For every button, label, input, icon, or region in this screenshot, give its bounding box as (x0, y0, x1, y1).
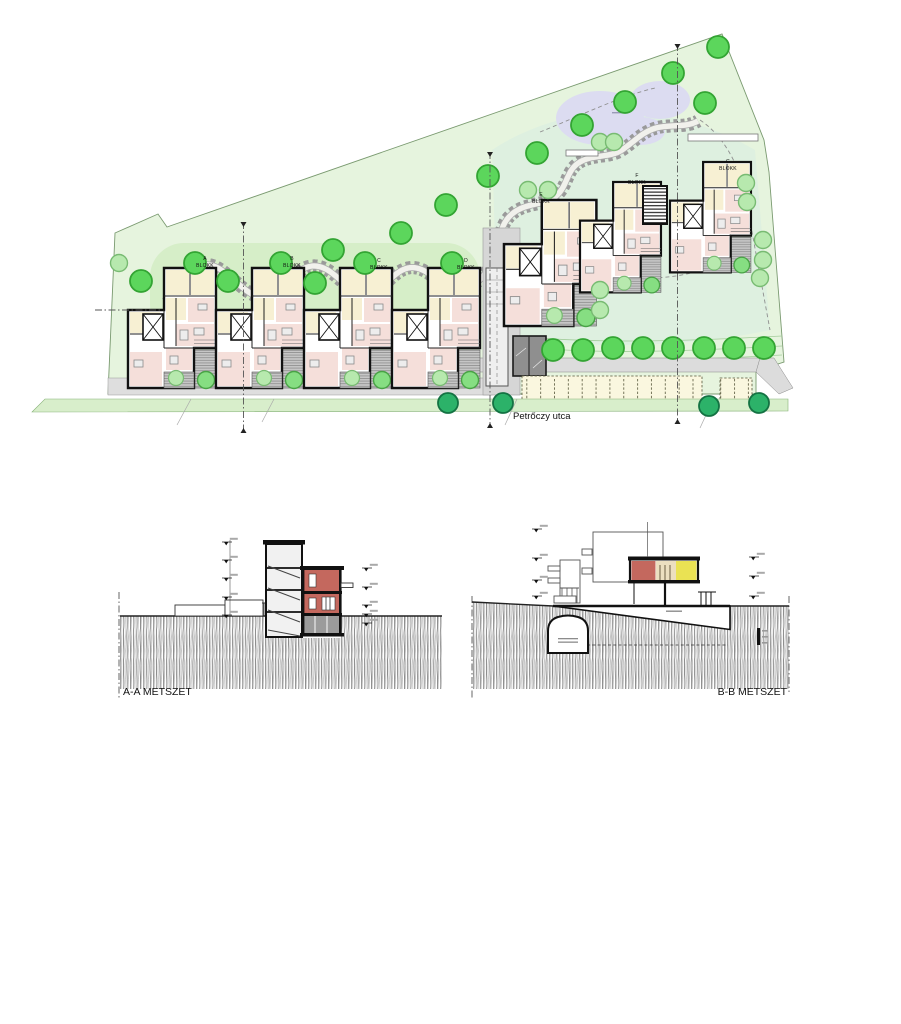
ground-floor-grey (303, 616, 339, 633)
block-g-word: BLOKK (719, 166, 737, 172)
base-slab (300, 633, 344, 637)
block-g-letter: G (726, 159, 730, 165)
red-room (632, 561, 656, 580)
bench (566, 150, 598, 156)
street-verge (32, 399, 788, 412)
block-b-word: BLOKK (283, 263, 301, 269)
sidewalk-corner (756, 358, 793, 394)
block-f-letter: F (635, 173, 638, 179)
window-3bar (322, 597, 335, 610)
architectural-drawing-sheet: A BLOKK B BLOKK C BLOKK D BLOKK E BLOKK … (0, 0, 901, 1024)
section-bb: B-B METSZET (472, 522, 789, 700)
site-plan: A BLOKK B BLOKK C BLOKK D BLOKK E BLOKK … (32, 34, 793, 433)
street-label: Petrőczy utca (513, 411, 571, 422)
cellar-tunnel (548, 616, 588, 654)
block-e-word: BLOKK (532, 199, 550, 205)
section-aa-label: A-A METSZET (123, 686, 192, 698)
section-bb-label: B-B METSZET (718, 686, 788, 698)
level-markers-bb-left (532, 525, 548, 600)
drawing-canvas: A BLOKK B BLOKK C BLOKK D BLOKK E BLOKK … (0, 0, 901, 1024)
block-e-letter: E (539, 192, 543, 198)
garage-deck-text (666, 611, 682, 612)
outdoor-stair (643, 186, 667, 224)
block-c-word: BLOKK (370, 265, 388, 271)
ground-hatch-bb-right (730, 606, 789, 689)
building-section-aa (263, 540, 353, 637)
pergola (688, 134, 758, 141)
window (309, 598, 316, 609)
refuse-store (513, 336, 546, 376)
upper-floor-red (303, 570, 339, 591)
stair-room (656, 561, 676, 580)
block-f-word: BLOKK (628, 180, 646, 186)
block-c-letter: C (377, 258, 381, 264)
canopy (341, 583, 353, 588)
terrace-railing (698, 592, 716, 606)
block-a-word: BLOKK (196, 263, 214, 269)
block-a-letter: A (203, 256, 207, 262)
roof-slab-bb (628, 557, 700, 561)
block-d-word: BLOKK (457, 265, 475, 271)
section-aa: A-A METSZET (119, 538, 442, 700)
block-d-letter: D (464, 258, 468, 264)
yellow-room (676, 561, 697, 580)
window (309, 574, 316, 587)
block-b-letter: B (290, 256, 294, 262)
roof-slab-tower (263, 540, 305, 545)
roof-slab-flat (300, 566, 344, 570)
floor-slab-bb (628, 580, 700, 583)
